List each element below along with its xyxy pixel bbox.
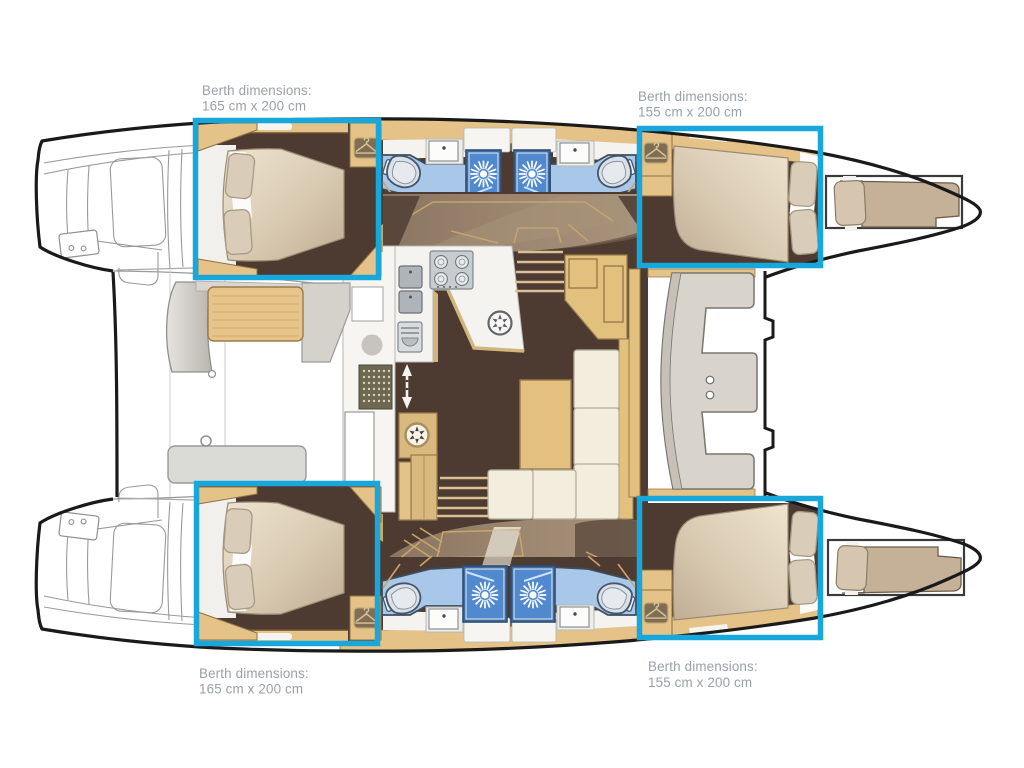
svg-text:165 cm x 200 cm: 165 cm x 200 cm: [202, 99, 306, 114]
svg-text:155 cm x 200 cm: 155 cm x 200 cm: [638, 105, 742, 120]
svg-text:165 cm x 200 cm: 165 cm x 200 cm: [199, 682, 303, 697]
svg-text:Berth dimensions:: Berth dimensions:: [638, 89, 748, 104]
svg-text:Berth dimensions:: Berth dimensions:: [199, 666, 309, 681]
svg-text:Berth dimensions:: Berth dimensions:: [648, 659, 758, 674]
svg-text:155 cm x 200 cm: 155 cm x 200 cm: [648, 675, 752, 690]
svg-text:Berth dimensions:: Berth dimensions:: [202, 83, 312, 98]
